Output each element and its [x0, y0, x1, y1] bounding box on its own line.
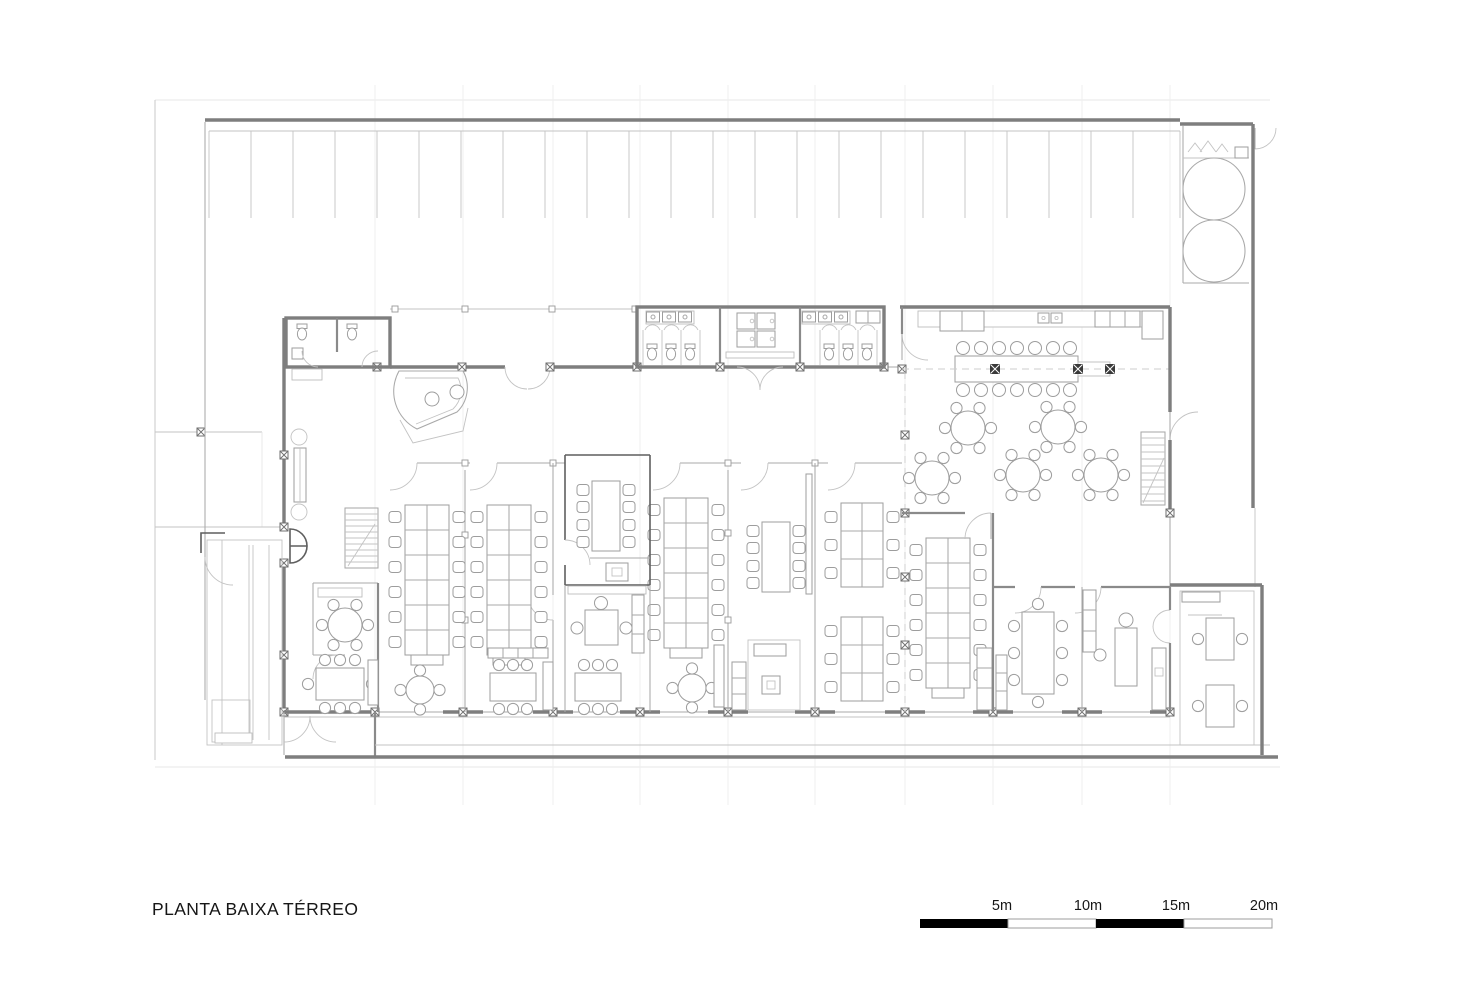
- page-title: PLANTA BAIXA TÉRREO: [152, 899, 358, 919]
- scale-label-20m: 20m: [1250, 898, 1278, 914]
- door-arc: [965, 513, 991, 539]
- side-entry-double-door: [290, 529, 307, 563]
- left-meeting-rooms: [302, 583, 378, 714]
- scale-label-5m: 5m: [992, 898, 1012, 914]
- plant: [291, 504, 307, 520]
- desk-cluster: [825, 503, 899, 587]
- title-block: PLANTA BAIXA TÉRREO: [152, 899, 358, 919]
- restroom-lobby-doors: [737, 367, 783, 390]
- double-door: [1153, 610, 1170, 643]
- bay-door-arcs: [390, 463, 855, 490]
- desk-bench: [648, 498, 724, 658]
- lounge: [732, 640, 800, 710]
- reception: [291, 371, 468, 520]
- door-arc: [902, 334, 928, 360]
- scale-segment-4: [1184, 919, 1272, 928]
- right-rooms: [993, 587, 1170, 712]
- water-tank-1: [1183, 158, 1245, 220]
- small-office: [565, 585, 650, 715]
- desk: [1115, 628, 1137, 686]
- entrance-double-door: [505, 367, 550, 389]
- desk-bench: [389, 505, 465, 665]
- water-tank-room: [1180, 124, 1276, 587]
- door-arc: [1170, 412, 1198, 440]
- whiteboard: [806, 474, 812, 594]
- open-office: [389, 372, 992, 715]
- scale-segment-3: [1096, 919, 1184, 928]
- desk-bench: [910, 538, 986, 698]
- stair-cafeteria: [1141, 432, 1165, 505]
- kitchenette-counter: [568, 586, 646, 594]
- reception-chair: [450, 385, 464, 399]
- bench: [726, 352, 794, 358]
- scale-label-10m: 10m: [1074, 898, 1102, 914]
- parking-stalls: [209, 131, 1180, 218]
- right-meeting-room: [996, 598, 1068, 710]
- water-tank-2: [1183, 220, 1245, 282]
- desk-bench: [471, 505, 547, 665]
- scale-label-15m: 15m: [1162, 898, 1190, 914]
- scale-segment-1: [920, 919, 1008, 928]
- central-meeting-room: [565, 455, 650, 715]
- desk: [585, 610, 618, 645]
- scale-bar: 5m 10m 15m 20m: [920, 898, 1278, 928]
- right-office: [1082, 587, 1166, 712]
- plant: [291, 429, 307, 445]
- restrooms: [637, 307, 884, 390]
- sofa: [732, 662, 746, 710]
- desk-cluster: [825, 617, 899, 701]
- corner-office: [1170, 585, 1262, 755]
- floor-plan-sheet: PLANTA BAIXA TÉRREO 5m 10m 15m 20m: [0, 0, 1460, 1000]
- door-arc: [1255, 128, 1276, 149]
- ramp: [201, 533, 282, 745]
- locker-area: [726, 313, 794, 358]
- reception-chair: [425, 392, 439, 406]
- floor-plan-drawing: PLANTA BAIXA TÉRREO 5m 10m 15m 20m: [0, 0, 1460, 1000]
- vestibule-doors: [284, 716, 336, 742]
- gravel-symbol: [1188, 141, 1228, 152]
- stair-left: [345, 508, 378, 568]
- scale-segment-2: [1008, 919, 1096, 928]
